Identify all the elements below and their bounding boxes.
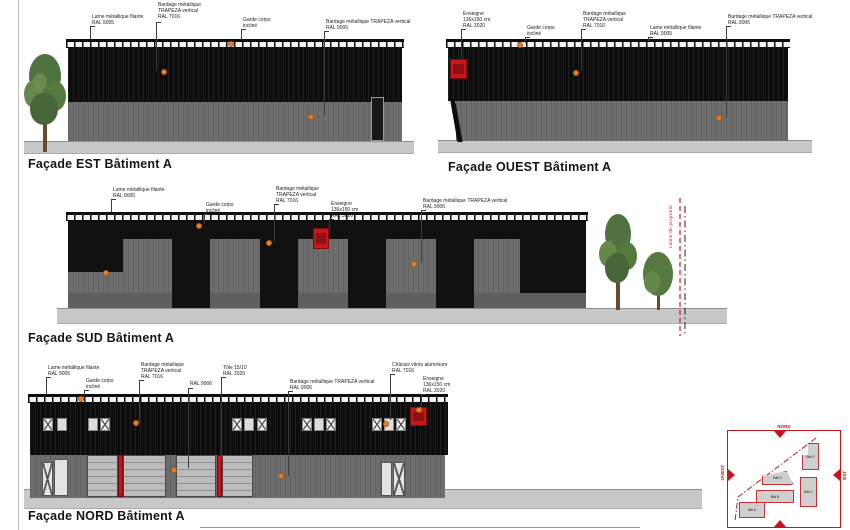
- callout-label: Lame métallique filante RAL 9005: [650, 25, 701, 37]
- callout-label: Bardage métallique TRAPEZA vertical RAL …: [158, 2, 201, 20]
- facade-est-title: Façade EST Bâtiment A: [28, 157, 172, 171]
- callout-label: Garde corps incliné: [527, 25, 555, 37]
- marker-dot: [383, 421, 389, 427]
- site-plan: NORD OUEST EST Bât A Bât B Bât C Bât D B…: [727, 430, 841, 528]
- coping-rail: [446, 39, 790, 48]
- window: [43, 418, 53, 431]
- facade-ouest-title: Façade OUEST Bâtiment A: [448, 160, 611, 174]
- service-door: [54, 459, 68, 496]
- dark-cladding-band: [68, 48, 402, 102]
- leader-line: [726, 26, 727, 117]
- callout-label: Enseigne 136x150 cm RAL 3020: [463, 11, 490, 29]
- plan-building-label: Bât C: [804, 490, 813, 494]
- window: [326, 418, 336, 431]
- marker-dot: [573, 70, 579, 76]
- callout-label: Garde corps incliné: [206, 202, 234, 214]
- service-door: [381, 462, 392, 496]
- gray-cladding-band: [456, 101, 788, 141]
- leader-line: [204, 214, 205, 224]
- leader-line: [581, 29, 582, 71]
- marker-dot: [228, 41, 234, 47]
- leader-line: [274, 204, 275, 242]
- enseigne-logo: [453, 64, 464, 74]
- east-arrow-icon: [833, 469, 840, 481]
- marker-dot: [517, 42, 523, 48]
- callout-label: Bardage métallique TRAPEZA vertical RAL …: [423, 198, 507, 210]
- dark-cladding-column: [348, 221, 386, 308]
- service-door: [393, 462, 405, 496]
- marker-dot: [308, 114, 314, 120]
- sectional-door: [87, 455, 118, 497]
- leader-line: [461, 29, 462, 60]
- coping-rail: [28, 394, 448, 403]
- callout-label: Tôle 15/10 RAL 3020: [223, 365, 247, 377]
- callout-label: Garde corps incliné: [86, 378, 114, 390]
- ground-bar: [24, 141, 414, 154]
- ground-bar: [438, 140, 812, 153]
- marker-dot: [416, 407, 422, 413]
- facade-nord-title: Façade NORD Bâtiment A: [28, 509, 185, 523]
- red-sheet-strip: [118, 455, 123, 497]
- sectional-door: [176, 455, 216, 497]
- leader-line: [139, 380, 140, 423]
- west-arrow-icon: [728, 469, 735, 481]
- property-line-label: Limite de propriété: [668, 198, 673, 248]
- window: [244, 418, 254, 431]
- sectional-door: [222, 455, 253, 497]
- plan-building-label: Bât B: [771, 495, 780, 499]
- dark-cladding-band: [448, 48, 788, 101]
- property-line: [676, 196, 690, 336]
- window: [396, 418, 406, 431]
- leader-line: [188, 388, 189, 468]
- leader-line: [329, 219, 330, 230]
- marker-dot: [196, 223, 202, 229]
- callout-label: Bardage métallique TRAPEZA vertical RAL …: [326, 19, 410, 31]
- callout-label: Bardage métallique TRAPEZA vertical RAL …: [141, 362, 184, 380]
- coping-rail: [66, 39, 404, 48]
- callout-label: Châssis vitrés aluminium RAL 7016: [392, 362, 447, 374]
- callout-label: Bardage métallique TRAPEZA vertical RAL …: [583, 11, 626, 29]
- marker-dot: [171, 467, 177, 473]
- window: [372, 418, 382, 431]
- marker-dot: [161, 69, 167, 75]
- tree-graphic: [638, 248, 680, 312]
- leader-line: [288, 391, 289, 476]
- service-door: [42, 462, 53, 496]
- leader-line: [390, 374, 391, 420]
- plan-building-label: Bât A: [748, 508, 756, 512]
- dark-cladding-column: [172, 221, 210, 308]
- wall-footer-strip: [68, 293, 586, 308]
- sheet-edge-line: [200, 527, 640, 528]
- plan-direction-north: NORD: [777, 424, 790, 429]
- leader-line: [241, 29, 242, 40]
- window: [314, 418, 324, 431]
- window: [232, 418, 242, 431]
- leader-line: [84, 390, 85, 396]
- enseigne-logo: [316, 233, 326, 244]
- tree-graphic: [22, 46, 68, 154]
- leader-line: [648, 37, 649, 41]
- leader-line: [421, 210, 422, 263]
- marker-dot: [411, 261, 417, 267]
- callout-label: Bardage métallique TRAPEZA vertical RAL …: [728, 14, 812, 26]
- leader-line: [156, 22, 157, 71]
- callout-label: Bardage métallique TRAPEZA vertical RAL …: [276, 186, 319, 204]
- window: [57, 418, 67, 431]
- callout-label: Bardage métallique TRAPEZA vertical RAL …: [290, 379, 374, 391]
- gray-cladding-band: [68, 102, 402, 141]
- leader-line: [221, 377, 222, 462]
- sectional-door: [123, 455, 166, 497]
- window: [302, 418, 312, 431]
- access-door: [371, 97, 384, 141]
- plan-building-a: Bât A: [739, 502, 765, 518]
- marker-dot: [133, 420, 139, 426]
- plan-building-b: Bât B: [756, 490, 794, 503]
- callout-label: Enseigne 136x150 cm RAL 3020: [331, 201, 358, 219]
- north-arrow-icon: [774, 431, 786, 438]
- south-arrow-icon: [774, 520, 786, 527]
- sheet-border-left: [18, 0, 19, 530]
- leader-line: [111, 199, 112, 212]
- plan-building-c: Bât C: [800, 477, 817, 507]
- callout-label: Lame métallique filante RAL 9005: [48, 365, 99, 377]
- enseigne-sign: [313, 228, 329, 249]
- callout-label: Garde corps incliné: [243, 17, 271, 29]
- leader-line: [46, 377, 47, 394]
- facade-sud-title: Façade SUD Bâtiment A: [28, 331, 174, 345]
- dark-cladding-column: [436, 221, 474, 308]
- leader-line: [90, 26, 91, 39]
- marker-dot: [716, 115, 722, 121]
- plan-direction-east: EST: [842, 471, 847, 480]
- callout-label: Lame métallique filante RAL 9005: [113, 187, 164, 199]
- marker-dot: [78, 396, 84, 402]
- plan-direction-west: OUEST: [720, 465, 725, 481]
- coping-rail: [66, 212, 588, 221]
- callout-label: Lame métallique filante RAL 9005: [92, 14, 143, 26]
- plan-building-label: Bât D: [773, 476, 782, 480]
- window: [100, 418, 110, 431]
- leader-line: [525, 37, 526, 43]
- marker-dot: [103, 270, 109, 276]
- window: [88, 418, 98, 431]
- dark-cladding-column: [260, 221, 298, 308]
- drawing-sheet: Façade EST Bâtiment A Lame métallique fi…: [0, 0, 850, 530]
- marker-dot: [266, 240, 272, 246]
- marker-dot: [278, 473, 284, 479]
- enseigne-sign: [450, 59, 467, 79]
- callout-label: Enseigne 136x150 cm RAL 3020: [423, 376, 450, 394]
- leader-line: [421, 394, 422, 408]
- dark-cladding-panel: [520, 221, 586, 293]
- window: [257, 418, 267, 431]
- leader-line: [324, 31, 325, 115]
- callout-label: RAL 9006: [190, 381, 212, 387]
- enseigne-logo: [413, 412, 424, 421]
